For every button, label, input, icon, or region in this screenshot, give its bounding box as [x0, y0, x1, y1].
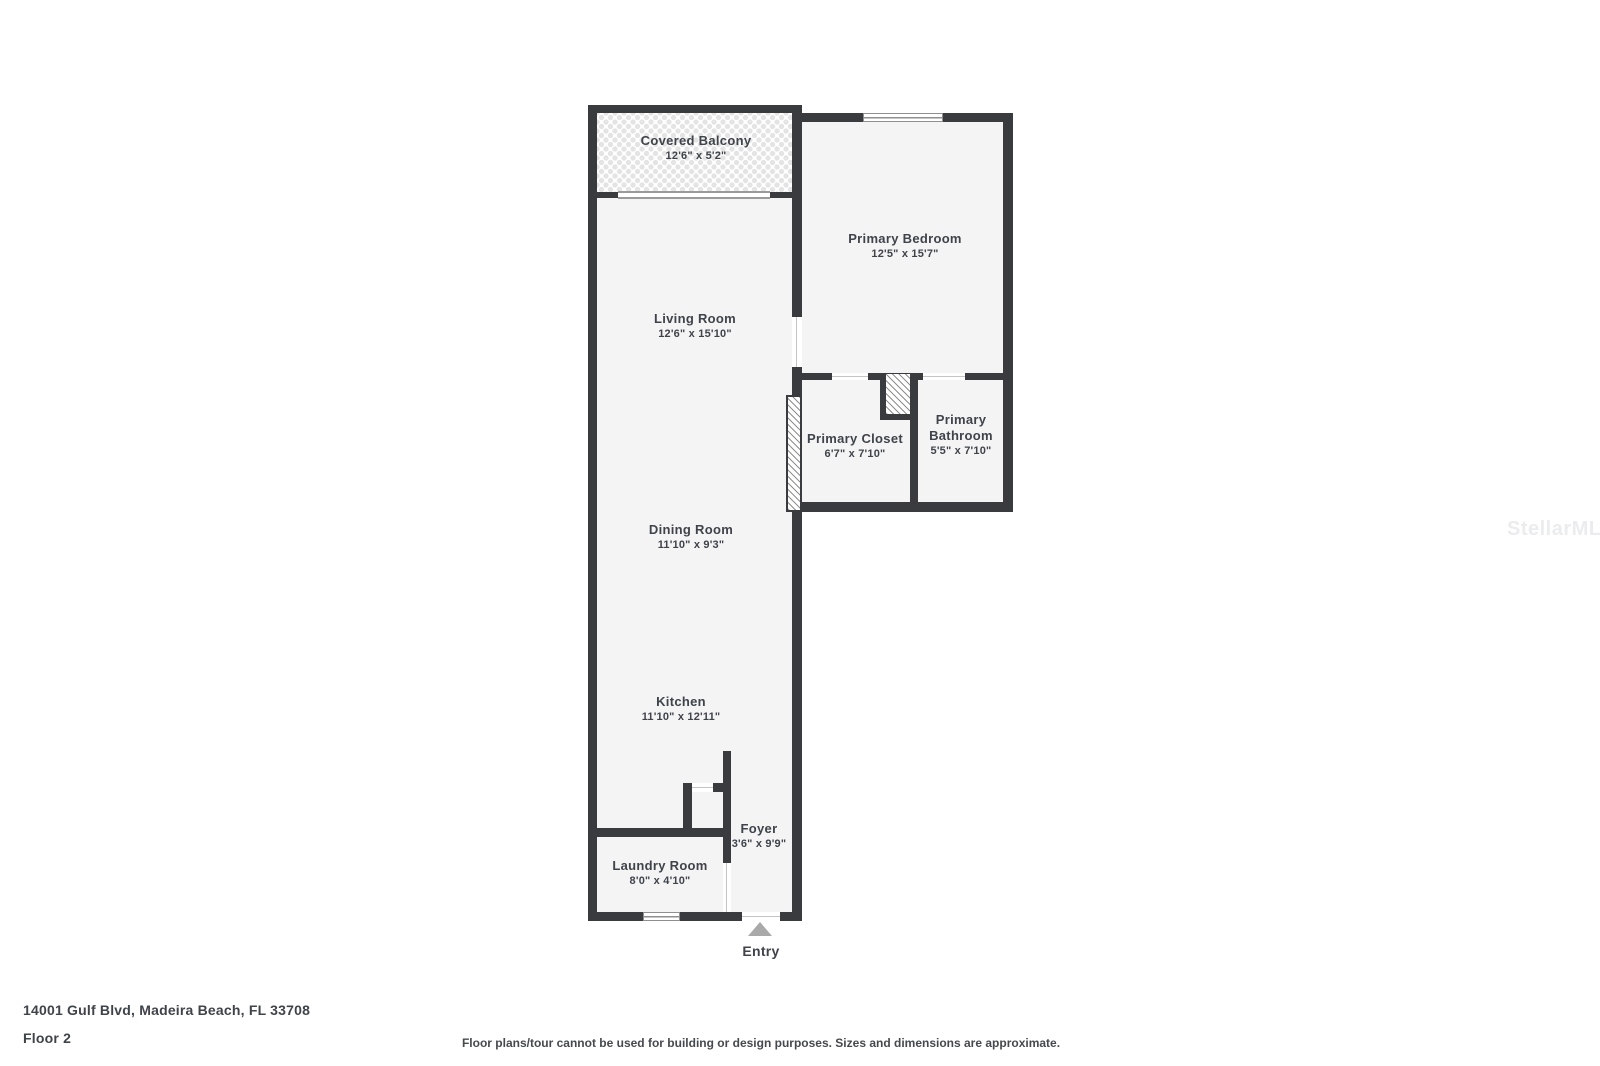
- stellar-mls-watermark: StellarMLS: [1507, 518, 1600, 541]
- room-name: Primary Bedroom: [848, 231, 962, 247]
- room-label-kitchen: Kitchen 11'10" x 12'11": [642, 694, 721, 724]
- room-name: Primary Bathroom: [914, 412, 1009, 444]
- disclaimer-text: Floor plans/tour cannot be used for buil…: [462, 1036, 1060, 1050]
- room-dims: 12'6" x 5'2": [641, 150, 752, 163]
- room-dims: 11'10" x 12'11": [642, 711, 721, 724]
- wall-spine-upper: [792, 105, 802, 317]
- balcony-slider-window: [618, 191, 770, 199]
- wall-laundry-top: [588, 828, 731, 837]
- bedroom-window: [863, 113, 943, 122]
- door-kitchen-closet: [692, 783, 713, 792]
- room-label-primary-closet: Primary Closet 6'7" x 7'10": [807, 431, 903, 461]
- wall-bottom-c: [780, 912, 802, 921]
- room-dims: 11'10" x 9'3": [649, 539, 733, 552]
- wall-bedroom-top-a: [802, 113, 863, 122]
- floor-plan-canvas: Entry Covered Balcony 12'6" x 5'2" Livin…: [0, 0, 1600, 1066]
- wall-balcony-left: [588, 105, 597, 198]
- room-dims: 12'5" x 15'7": [848, 248, 962, 261]
- room-name: Foyer: [732, 821, 787, 837]
- hatched-wall-strip: [786, 395, 802, 512]
- room-label-primary-bedroom: Primary Bedroom 12'5" x 15'7": [848, 231, 962, 261]
- door-bedroom-to-bathroom: [923, 373, 965, 380]
- door-laundry: [723, 863, 731, 912]
- wall-bedroom-bottom-a: [802, 373, 832, 380]
- room-name: Laundry Room: [612, 858, 707, 874]
- wall-balcony-top: [588, 105, 802, 113]
- wall-kitchen-closet-left: [683, 783, 692, 830]
- room-name: Kitchen: [642, 694, 721, 710]
- wall-balcony-stub-right: [770, 192, 802, 198]
- entry-opening: [742, 912, 780, 921]
- room-dims: 3'6" x 9'9": [732, 838, 787, 851]
- chase-hatch: [886, 374, 910, 414]
- wall-bottom-b: [680, 912, 742, 921]
- wall-foyer-left: [723, 751, 731, 863]
- room-label-foyer: Foyer 3'6" x 9'9": [732, 821, 787, 851]
- room-label-living-room: Living Room 12'6" x 15'10": [654, 311, 736, 341]
- room-label-primary-bathroom: Primary Bathroom 5'5" x 7'10": [914, 412, 1009, 458]
- wall-bedroom-bottom-c: [965, 373, 1003, 380]
- wall-balcony-stub-left: [588, 192, 618, 198]
- room-dims: 8'0" x 4'10": [612, 875, 707, 888]
- room-name: Dining Room: [649, 522, 733, 538]
- wall-closet-bath-bottom: [792, 502, 1013, 512]
- main-column-floor: [597, 198, 792, 912]
- room-label-laundry-room: Laundry Room 8'0" x 4'10": [612, 858, 707, 888]
- floor-label: Floor 2: [23, 1030, 71, 1046]
- room-name: Living Room: [654, 311, 736, 327]
- room-label-covered-balcony: Covered Balcony 12'6" x 5'2": [641, 133, 752, 163]
- room-name: Covered Balcony: [641, 133, 752, 149]
- room-label-dining-room: Dining Room 11'10" x 9'3": [649, 522, 733, 552]
- wall-left-outer: [588, 192, 597, 921]
- room-dims: 12'6" x 15'10": [654, 328, 736, 341]
- room-dims: 5'5" x 7'10": [914, 445, 1009, 458]
- door-living-to-bedroom: [792, 317, 802, 367]
- entry-label: Entry: [742, 943, 779, 959]
- entry-arrow-icon: [748, 922, 772, 936]
- room-name: Primary Closet: [807, 431, 903, 447]
- property-address: 14001 Gulf Blvd, Madeira Beach, FL 33708: [23, 1002, 310, 1018]
- door-bedroom-to-closet: [832, 373, 868, 380]
- wall-bottom-a: [588, 912, 643, 921]
- laundry-window: [643, 912, 680, 921]
- room-dims: 6'7" x 7'10": [807, 448, 903, 461]
